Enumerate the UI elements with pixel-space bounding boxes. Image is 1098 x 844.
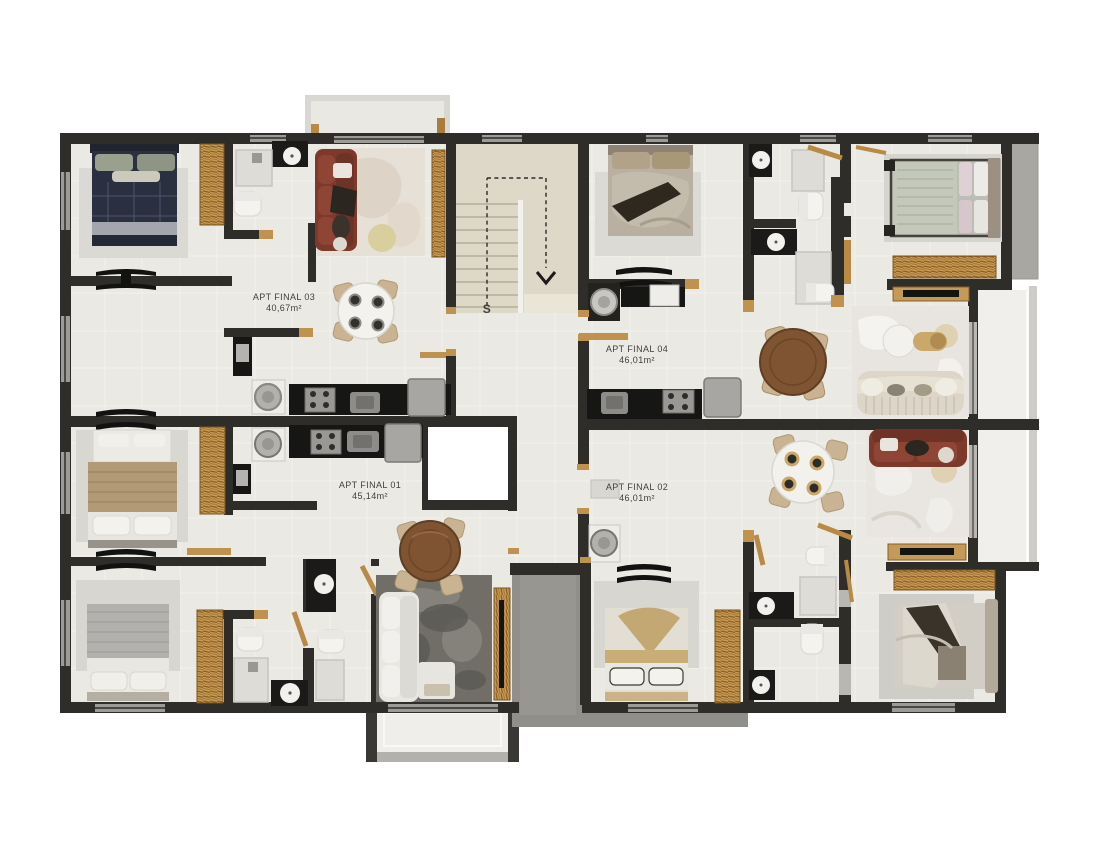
svg-text:46,01m²: 46,01m² bbox=[619, 355, 655, 365]
svg-text:40,67m²: 40,67m² bbox=[266, 303, 302, 313]
svg-text:45,14m²: 45,14m² bbox=[352, 491, 388, 501]
svg-text:S: S bbox=[483, 302, 491, 316]
svg-text:APT FINAL 04: APT FINAL 04 bbox=[606, 344, 668, 354]
svg-text:46,01m²: 46,01m² bbox=[619, 493, 655, 503]
svg-text:APT FINAL 03: APT FINAL 03 bbox=[253, 292, 315, 302]
svg-text:APT FINAL 01: APT FINAL 01 bbox=[339, 480, 401, 490]
svg-text:APT FINAL 02: APT FINAL 02 bbox=[606, 482, 668, 492]
